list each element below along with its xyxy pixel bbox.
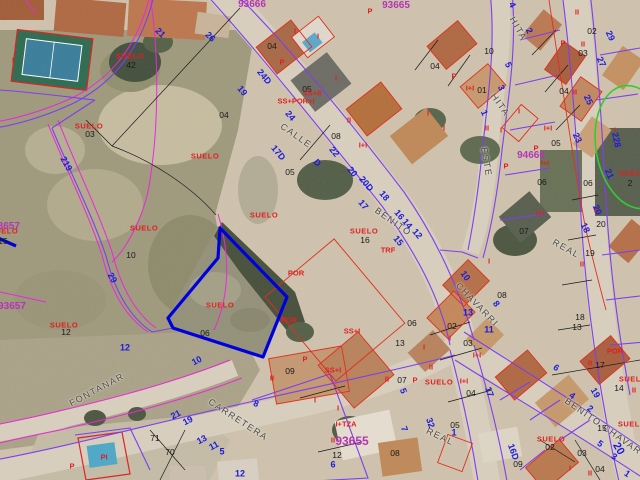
map-label-blue: 19 bbox=[181, 415, 194, 428]
map-label-black: 19 bbox=[585, 249, 594, 258]
map-label-blue: 18 bbox=[579, 222, 591, 235]
map-label-red: I+I bbox=[536, 209, 545, 217]
map-label-red: I+I bbox=[466, 84, 475, 92]
map-label-red: II bbox=[588, 359, 592, 367]
map-label-red: II bbox=[581, 40, 585, 48]
map-label-red: II bbox=[331, 436, 335, 444]
cadastral-map-canvas[interactable]: CALLEBENITOCHAVARRIHITAHITAESTECARRETERA… bbox=[0, 0, 640, 480]
map-label-red: P bbox=[503, 162, 508, 170]
map-label-red: I bbox=[423, 343, 425, 351]
map-label-black: 15 bbox=[0, 237, 8, 246]
map-label-blue: 17 bbox=[356, 198, 369, 211]
map-label-red: I bbox=[569, 464, 571, 472]
map-label-red: I+I bbox=[460, 377, 469, 385]
map-label-blue: 19 bbox=[235, 84, 248, 97]
map-label-black: 07 bbox=[519, 227, 528, 236]
map-label-red: I+I bbox=[359, 141, 368, 149]
map-label-red: POR bbox=[281, 316, 297, 324]
map-label-street: HITA bbox=[489, 92, 511, 118]
map-label-blue: 16D bbox=[506, 443, 520, 462]
map-label-blue: 1 bbox=[451, 429, 456, 438]
map-label-black: 13 bbox=[572, 323, 581, 332]
map-label-red: II bbox=[485, 124, 489, 132]
map-label-red: I+I bbox=[544, 124, 553, 132]
map-label-red: II bbox=[270, 374, 274, 382]
map-label-street: REAL bbox=[551, 238, 581, 260]
map-label-black: 09 bbox=[513, 460, 522, 469]
map-label-blue: 3 bbox=[496, 84, 506, 92]
map-label-black: 10 bbox=[484, 47, 493, 56]
map-label-red: I bbox=[518, 107, 520, 115]
map-label-black: 08 bbox=[331, 132, 340, 141]
map-label-blue: 26 bbox=[203, 30, 216, 43]
map-label-red: P bbox=[302, 355, 307, 363]
map-label-red: I+I bbox=[541, 159, 550, 167]
map-labels-layer: CALLEBENITOCHAVARRIHITAHITAESTECARRETERA… bbox=[0, 0, 640, 480]
map-label-red: POR bbox=[607, 347, 623, 355]
map-label-red: I+I bbox=[473, 351, 482, 359]
map-label-blue: 27 bbox=[595, 56, 607, 69]
map-label-black: 20 bbox=[596, 220, 605, 229]
map-label-red: I bbox=[443, 124, 445, 132]
map-label-red: I bbox=[449, 334, 451, 342]
map-label-black: 06 bbox=[407, 319, 416, 328]
map-label-blue: 13 bbox=[195, 434, 208, 447]
map-label-suelo: SUELO bbox=[350, 227, 378, 235]
map-label-blue: 21 bbox=[153, 26, 166, 39]
map-label-blue: 21 bbox=[603, 168, 615, 181]
map-label-blue: 17D bbox=[269, 144, 287, 162]
map-label-blue: 8 bbox=[252, 399, 260, 409]
map-label-black: 16 bbox=[360, 236, 369, 245]
map-label-blue: 11 bbox=[208, 440, 221, 452]
map-label-mag: 93657 bbox=[0, 302, 26, 312]
map-label-blue: 20D bbox=[357, 175, 375, 193]
map-label-suelo: SUELO bbox=[250, 211, 278, 219]
map-label-blue: 29 bbox=[106, 271, 119, 284]
map-label-black: 01 bbox=[477, 86, 486, 95]
map-label-red: P bbox=[367, 7, 372, 15]
map-label-red: TRF bbox=[381, 246, 396, 254]
map-label-black: 06 bbox=[537, 178, 546, 187]
map-label-black: 08 bbox=[390, 449, 399, 458]
map-label-black: 12 bbox=[332, 451, 341, 460]
map-label-black: 03 bbox=[85, 130, 94, 139]
map-label-street: ESTE bbox=[479, 147, 493, 178]
map-label-red: II bbox=[429, 363, 433, 371]
map-label-red: SS+I bbox=[325, 366, 341, 374]
map-label-red: P bbox=[412, 376, 417, 384]
map-label-black: 04 bbox=[430, 62, 439, 71]
map-label-red: II bbox=[580, 260, 584, 268]
map-label-suelo: SUELO bbox=[191, 152, 219, 160]
map-label-black: 04 bbox=[466, 389, 475, 398]
map-label-red: I bbox=[500, 126, 502, 134]
map-label-black: 02 bbox=[587, 27, 596, 36]
map-label-black: 06 bbox=[583, 179, 592, 188]
map-label-black: 05 bbox=[551, 139, 560, 148]
map-label-blue: 5 bbox=[219, 448, 224, 457]
map-label-blue: 6 bbox=[330, 461, 335, 470]
map-label-blue: 29 bbox=[604, 30, 616, 43]
map-label-blue: 19 bbox=[589, 386, 602, 399]
map-label-blue: 25 bbox=[582, 94, 594, 107]
map-label-red: I bbox=[294, 27, 296, 35]
map-label-red: I bbox=[337, 404, 339, 412]
map-label-mag: 93665 bbox=[382, 1, 410, 11]
map-label-black: 15 bbox=[597, 424, 606, 433]
map-label-blue: 5 bbox=[398, 387, 408, 395]
map-label-street: CARRETERA bbox=[207, 397, 270, 442]
map-label-red: II bbox=[385, 375, 389, 383]
map-label-black: 14 bbox=[614, 384, 623, 393]
map-label-blue: 4 bbox=[507, 1, 517, 9]
map-label-blue: 24D bbox=[255, 68, 273, 86]
map-label-black: 04 bbox=[595, 465, 604, 474]
map-label-black: 09 bbox=[285, 367, 294, 376]
map-label-black: 04 bbox=[267, 42, 276, 51]
map-label-red: I bbox=[12, 56, 14, 64]
map-label-red: I bbox=[488, 257, 490, 265]
map-label-black: 12 bbox=[61, 328, 70, 337]
map-label-blue: 1 bbox=[622, 469, 631, 479]
map-label-blue: 20 bbox=[591, 204, 603, 217]
map-label-blue: 2 bbox=[524, 27, 534, 35]
map-label-black: 42 bbox=[126, 61, 135, 70]
map-label-red: P bbox=[69, 462, 74, 470]
map-label-black: 13 bbox=[395, 339, 404, 348]
map-label-blue: 10 bbox=[190, 355, 203, 368]
map-label-blue: 20 bbox=[345, 165, 358, 178]
map-label-blue: 13 bbox=[463, 309, 473, 318]
map-label-black: 2 bbox=[628, 179, 633, 188]
map-label-blue: 11 bbox=[484, 326, 494, 335]
map-label-red: P bbox=[560, 39, 565, 47]
map-label-blue: 7 bbox=[399, 425, 409, 433]
map-label-black: 03 bbox=[577, 449, 586, 458]
map-label-red: I bbox=[317, 32, 319, 40]
map-label-suelo: SUELO bbox=[206, 301, 234, 309]
map-label-black: 06 bbox=[200, 329, 209, 338]
map-label-red: II bbox=[575, 8, 579, 16]
map-label-blue: 6 bbox=[551, 363, 560, 373]
map-label-suelo: SUELO bbox=[618, 420, 640, 428]
map-label-red: P bbox=[533, 144, 538, 152]
map-label-black: 04 bbox=[559, 87, 568, 96]
map-label-blue: 228 bbox=[610, 132, 622, 149]
map-label-blue: 12 bbox=[120, 344, 130, 353]
map-label-blue: 1 bbox=[479, 109, 489, 117]
map-label-suelo: SUELO bbox=[425, 378, 453, 386]
map-label-red: P bbox=[279, 58, 284, 66]
map-label-red: SS+I bbox=[344, 327, 360, 335]
map-label-black: 02 bbox=[545, 443, 554, 452]
map-label-black: 71 bbox=[150, 434, 159, 443]
map-label-black: 07 bbox=[397, 376, 406, 385]
map-label-suelo: SUELO bbox=[619, 375, 640, 383]
map-label-red: II bbox=[632, 386, 636, 394]
map-label-blue: 5 bbox=[595, 439, 604, 449]
map-label-suelo: SUELO bbox=[619, 169, 640, 177]
map-label-blue: 8 bbox=[491, 299, 501, 308]
map-label-black: 02 bbox=[447, 322, 456, 331]
map-label-suelo: SUELO bbox=[0, 227, 18, 235]
map-label-black: 70 bbox=[165, 448, 174, 457]
map-label-red: II bbox=[347, 116, 351, 124]
map-label-red: II bbox=[573, 88, 577, 96]
map-label-street: CALLE bbox=[279, 122, 314, 150]
map-label-red: I bbox=[427, 109, 429, 117]
map-label-black: 10 bbox=[126, 251, 135, 260]
map-label-red: PI bbox=[100, 453, 107, 461]
map-label-blue: 22 bbox=[327, 145, 340, 158]
map-label-black: 03 bbox=[578, 49, 587, 58]
map-label-black: 04 bbox=[219, 111, 228, 120]
map-label-blue: 5 bbox=[503, 61, 513, 69]
map-label-red: II bbox=[588, 469, 592, 477]
map-label-blue: 219 bbox=[58, 155, 73, 173]
map-label-suelo: SUELO bbox=[130, 224, 158, 232]
map-label-red: I bbox=[335, 74, 337, 82]
map-label-black: 18 bbox=[575, 313, 584, 322]
map-label-black: 03 bbox=[463, 339, 472, 348]
map-label-black: 05 bbox=[285, 168, 294, 177]
map-label-blue: D bbox=[311, 158, 322, 169]
map-label-blue: 24 bbox=[283, 109, 296, 122]
map-label-street: FONTANAR bbox=[68, 372, 126, 409]
map-label-red: SS+POR+I bbox=[277, 97, 314, 105]
map-label-blue: 18 bbox=[377, 189, 390, 202]
map-label-black: 17 bbox=[595, 361, 604, 370]
map-label-blue: 17 bbox=[483, 386, 495, 398]
map-label-red: P bbox=[451, 72, 456, 80]
map-label-red: I+TZA bbox=[335, 420, 356, 428]
map-label-blue: 23 bbox=[571, 132, 583, 145]
map-label-mag: 93666 bbox=[238, 0, 266, 10]
map-label-suelo: SUELO bbox=[116, 52, 144, 60]
map-label-red: I bbox=[314, 396, 316, 404]
map-label-blue: 12 bbox=[235, 470, 245, 479]
map-label-red: POR bbox=[288, 269, 304, 277]
map-label-mag: 93655 bbox=[335, 435, 368, 447]
